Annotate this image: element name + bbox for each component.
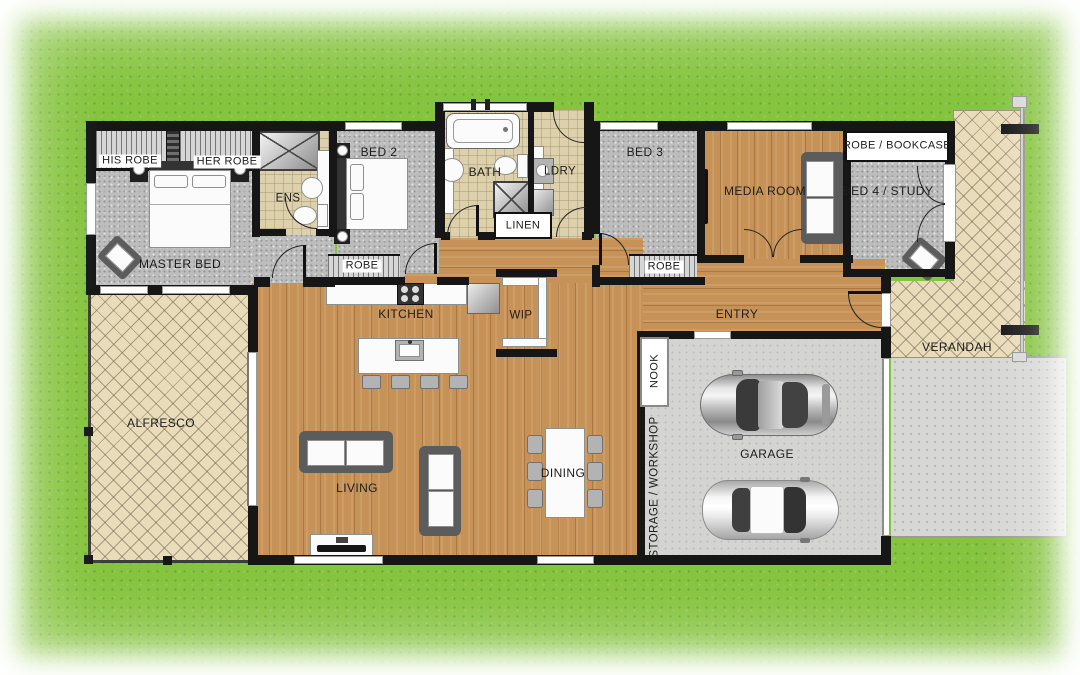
wall [496,269,557,277]
wall [592,121,600,234]
wall [881,277,891,293]
car-sedan [702,480,839,540]
room-label-master-bed: MASTER BED [139,258,221,270]
burner [401,295,408,302]
wall [637,555,891,565]
garage-internal-door [694,331,731,339]
room-label-living: LIVING [336,482,378,494]
car-tail [822,384,830,426]
wall [316,229,337,236]
wall [496,349,557,357]
window [537,556,594,564]
floor-plan: HIS ROBE HER ROBE MASTER BED ENS BED 2 B… [0,0,1080,675]
ensuite-toilet-cistern [317,204,328,227]
verandah-post [1001,325,1039,335]
ensuite-basin [301,177,323,199]
door-leaf [434,243,437,274]
room-label-his-robe: HIS ROBE [99,155,161,168]
gutter [1020,107,1024,359]
alfresco-post [84,555,93,564]
room-label-ldry: LDRY [544,166,576,178]
car-rear-glass [732,488,750,532]
wall [697,121,705,263]
wall [697,255,744,263]
room-label-linen: LINEN [506,221,540,232]
room-label-robe-bed2: ROBE [343,260,382,273]
door-leaf [303,245,306,278]
sofa-cushion [428,454,454,490]
wall [329,121,337,237]
window [100,286,148,294]
bar-stool [420,375,439,389]
table-lamp [337,231,348,242]
pantry-shelf [502,338,547,347]
pillow [154,175,188,188]
room-label-bed4-study: BED 4 / STUDY [843,185,934,197]
door-leaf [848,291,882,294]
car-mirror [732,434,743,440]
bar-stool [449,375,468,389]
car-mirror [800,477,810,482]
room-label-bed3: BED 3 [627,146,664,158]
window [345,122,402,130]
room-label-her-robe: HER ROBE [194,156,261,169]
pantry-shelf [538,277,547,347]
dining-chair [587,489,603,508]
room-label-robe-bed3: ROBE [645,261,684,274]
room-label-wip: WIP [510,310,533,322]
wall [731,331,889,339]
garage-panel-door [882,358,890,536]
wall [437,277,469,285]
wall [435,102,445,238]
burner [412,295,419,302]
car-windshield [784,487,806,533]
bar-stool [362,375,381,389]
room-label-robe-bookcase: ROBE / BOOKCASE [843,141,951,152]
room-label-dining: DINING [541,467,585,479]
room-label-media-room: MEDIA ROOM [724,185,806,197]
room-label-entry: ENTRY [716,308,758,320]
sofa-cushion [806,198,834,234]
window [86,183,96,235]
bath-toilet-cistern [517,154,528,178]
room-label-alfresco: ALFRESCO [127,417,195,429]
burner [412,286,419,293]
sink-bowl [399,344,420,357]
dining-chair [587,435,603,454]
tv [317,545,366,552]
sliding-door [247,352,257,506]
burner [401,286,408,293]
window [162,286,230,294]
cooktop [397,283,424,305]
gutter-tab [1012,352,1027,362]
bath-tap [485,99,490,110]
room-label-kitchen: KITCHEN [378,308,433,320]
window [294,556,383,564]
room-label-storage-workshop: STORAGE / WORKSHOP [649,416,661,557]
table-lamp [337,145,348,156]
car-mirror [800,538,810,543]
bed-fold-line [149,204,231,205]
wall [478,232,495,240]
window [600,122,658,130]
fridge [467,283,500,314]
sofa-cushion [307,440,345,466]
driveway [891,356,1066,538]
verandah-post [1001,124,1039,134]
door-leaf [599,233,602,265]
ensuite-shower [258,131,320,171]
room-label-verandah: VERANDAH [922,341,992,353]
alfresco-post [163,556,172,565]
front-door-opening [881,293,891,327]
bath-tap [471,99,476,110]
dining-chair [527,489,543,508]
room-label-bath: BATH [469,166,502,178]
tv-mount [336,537,348,543]
wall [596,277,705,285]
room-label-nook: NOOK [650,354,661,388]
car-rear-glass [782,382,808,428]
room-label-bed2: BED 2 [361,146,398,158]
wall [248,506,258,557]
wall [945,240,955,279]
pillow [350,164,364,191]
dining-chair [527,435,543,454]
sofa-cushion [346,440,384,466]
car-roof [750,486,784,534]
room-label-garage: GARAGE [740,448,794,460]
bar-stool [391,375,410,389]
sink-tap [408,340,412,344]
room-label-ens: ENS [276,193,301,205]
car-windshield [736,379,760,431]
pillow [192,175,226,188]
car-sports [700,374,838,436]
dining-chair [587,462,603,481]
pillow [350,193,364,220]
wall [252,121,260,237]
window [727,122,812,130]
bathtub-drain [503,127,508,132]
alfresco-post [84,427,93,436]
wall [248,285,258,352]
wall [256,229,286,236]
wall [843,269,955,277]
car-mirror [732,370,743,376]
sofa-cushion [806,161,834,197]
sofa-cushion [428,491,454,527]
door-leaf [476,205,479,236]
gutter-tab [1012,96,1027,108]
bed2-bed-head [337,157,346,231]
car-roof [758,381,784,429]
wall [322,277,405,285]
